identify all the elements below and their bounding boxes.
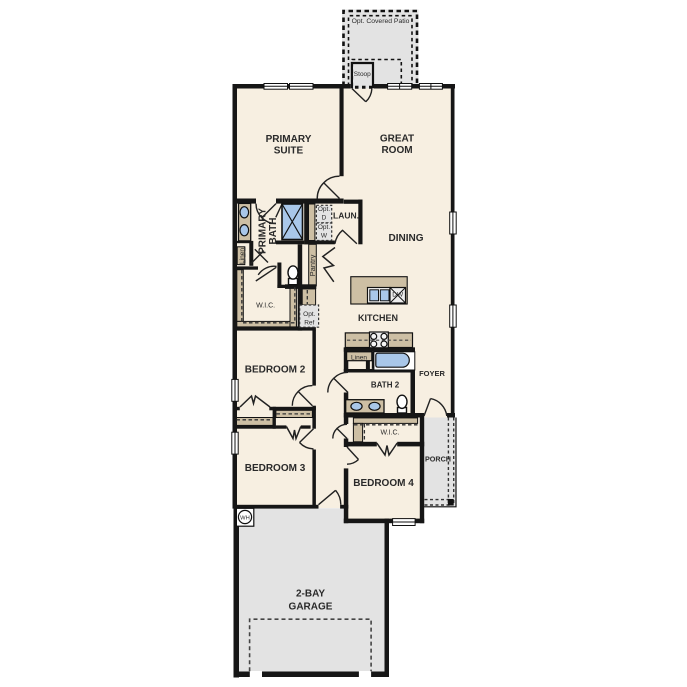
svg-text:D: D bbox=[322, 215, 327, 222]
svg-text:FOYER: FOYER bbox=[419, 369, 445, 378]
svg-text:GREAT: GREAT bbox=[380, 134, 414, 145]
svg-text:Linen: Linen bbox=[239, 248, 246, 264]
svg-text:GARAGE: GARAGE bbox=[289, 602, 333, 613]
svg-text:BEDROOM 3: BEDROOM 3 bbox=[245, 463, 306, 474]
svg-text:LAUN.: LAUN. bbox=[333, 211, 359, 221]
svg-text:BEDROOM 2: BEDROOM 2 bbox=[245, 365, 306, 376]
svg-text:BATH 2: BATH 2 bbox=[371, 381, 400, 390]
svg-text:PORCH: PORCH bbox=[425, 455, 451, 464]
svg-text:PRIMARY: PRIMARY bbox=[258, 208, 269, 254]
svg-text:Ref: Ref bbox=[304, 320, 314, 327]
svg-text:DINING: DINING bbox=[389, 233, 424, 244]
svg-text:PRIMARY: PRIMARY bbox=[266, 134, 312, 145]
svg-text:Pantry: Pantry bbox=[308, 254, 317, 276]
svg-text:W: W bbox=[321, 233, 328, 240]
svg-text:Linen: Linen bbox=[351, 355, 367, 362]
svg-text:SUITE: SUITE bbox=[274, 146, 304, 157]
svg-text:BEDROOM 4: BEDROOM 4 bbox=[353, 478, 414, 489]
svg-text:2-BAY: 2-BAY bbox=[296, 589, 325, 600]
svg-text:Stoop: Stoop bbox=[354, 71, 371, 78]
svg-text:Opt.: Opt. bbox=[303, 311, 315, 318]
svg-text:BATH: BATH bbox=[268, 217, 279, 244]
svg-text:DW: DW bbox=[392, 292, 404, 299]
svg-text:WH: WH bbox=[240, 515, 250, 521]
svg-text:Opt. Covered Patio: Opt. Covered Patio bbox=[352, 18, 410, 25]
svg-text:W.I.C.: W.I.C. bbox=[380, 430, 399, 437]
svg-text:Opt.: Opt. bbox=[318, 224, 330, 231]
svg-text:Opt.: Opt. bbox=[318, 206, 330, 213]
svg-text:W.I.C.: W.I.C. bbox=[256, 303, 275, 310]
svg-text:KITCHEN: KITCHEN bbox=[358, 313, 398, 323]
svg-text:ROOM: ROOM bbox=[381, 145, 412, 156]
